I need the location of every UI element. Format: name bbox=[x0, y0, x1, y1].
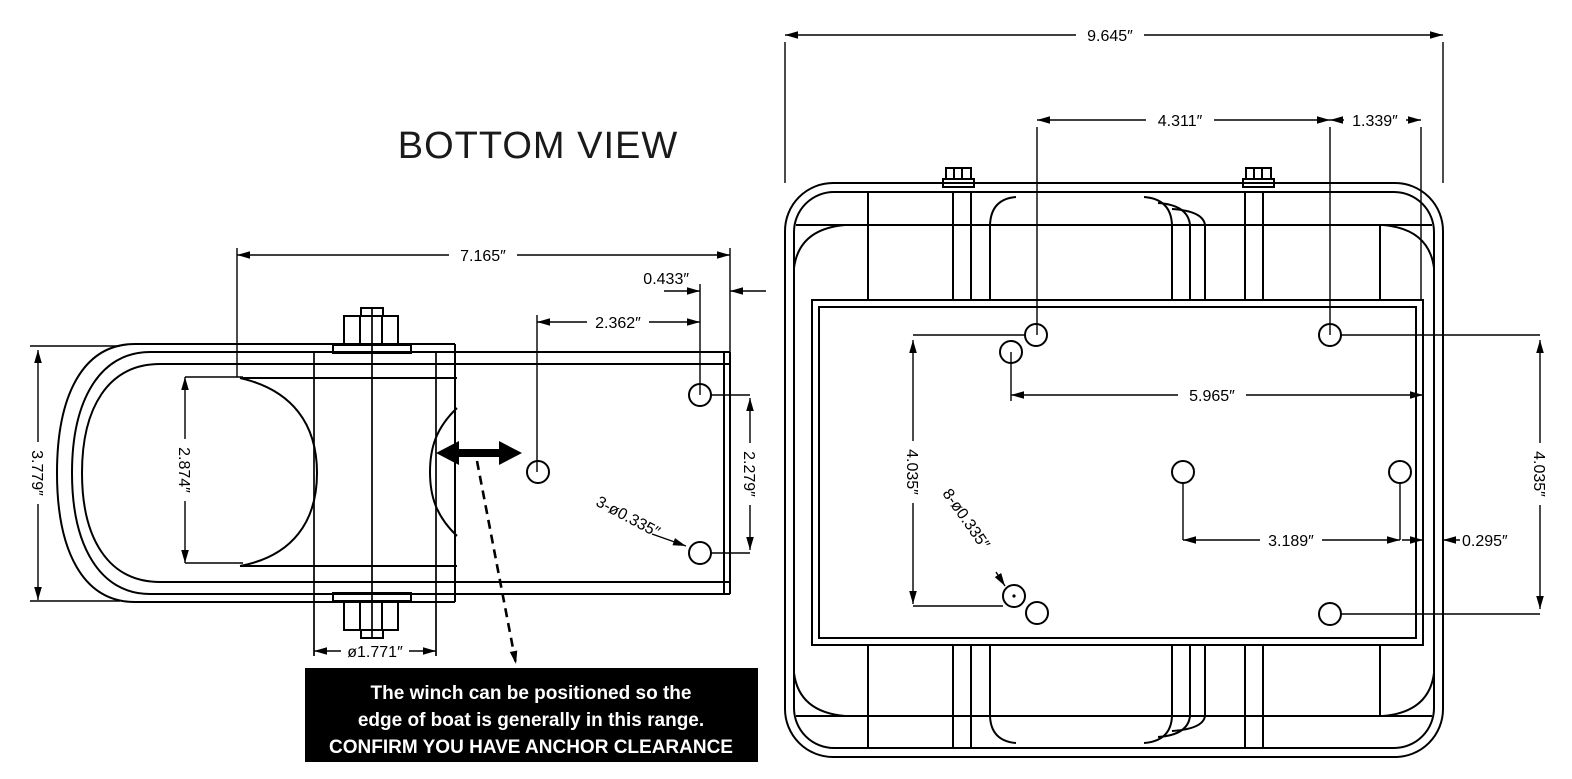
technical-drawing-sheet: BOTTOM VIEW bbox=[0, 0, 1572, 779]
top-struts bbox=[868, 193, 1380, 300]
dim-plate-width: 7.165″ bbox=[460, 248, 506, 265]
dim-hole-vertical-span: 2.279″ bbox=[740, 451, 757, 497]
note-leader-line bbox=[477, 461, 516, 664]
note-line-2: edge of boat is generally in this range. bbox=[358, 710, 704, 731]
left-view-structure bbox=[57, 308, 730, 656]
left-view-holes bbox=[527, 384, 711, 564]
double-headed-arrow bbox=[436, 441, 522, 465]
frame-bolt-right bbox=[1243, 168, 1274, 187]
callout-8-holes: 8-ø0.335″ bbox=[939, 486, 993, 553]
dim-hole-inset: 2.362″ bbox=[595, 315, 641, 332]
inner-arc bbox=[82, 364, 160, 582]
dim-edge-offset: 0.433″ bbox=[643, 271, 689, 288]
dim-overall-width: 9.645″ bbox=[1087, 28, 1133, 45]
drawing-canvas: BOTTOM VIEW bbox=[0, 0, 1572, 779]
dim-hole-span-bottom: 3.189″ bbox=[1268, 533, 1314, 550]
dim-hole-col-height-left: 4.035″ bbox=[903, 449, 920, 495]
right-view-holes bbox=[1000, 324, 1411, 625]
warning-note-box: The winch can be positioned so the edge … bbox=[305, 668, 758, 762]
middle-arc bbox=[72, 352, 150, 594]
dim-drum-diameter: ø1.771″ bbox=[347, 644, 403, 661]
note-line-1: The winch can be positioned so the bbox=[371, 683, 692, 704]
right-view-structure bbox=[785, 168, 1443, 757]
inner-frame bbox=[794, 192, 1434, 748]
dim-plate-edge-offset: 0.295″ bbox=[1462, 533, 1508, 550]
position-range-annotation bbox=[436, 441, 522, 664]
dim-hole-col-height-right: 4.035″ bbox=[1530, 451, 1547, 497]
dim-hole-span-top: 4.311″ bbox=[1158, 113, 1203, 130]
dim-overall-height: 3.779″ bbox=[28, 450, 45, 496]
dim-top-edge-offset: 1.339″ bbox=[1352, 113, 1398, 130]
frame-bolt-left bbox=[943, 168, 974, 187]
dim-hole-span-mid: 5.965″ bbox=[1189, 388, 1235, 405]
page-title: BOTTOM VIEW bbox=[398, 125, 679, 167]
outer-arc bbox=[57, 344, 135, 602]
left-view-dimensions: 7.165″ 0.433″ 2.362″ 3.779″ 2.874″ 2.279… bbox=[28, 246, 766, 661]
outer-frame bbox=[785, 183, 1443, 757]
drum-arc bbox=[240, 378, 317, 566]
note-line-3: CONFIRM YOU HAVE ANCHOR CLEARANCE bbox=[329, 737, 733, 758]
dim-drum-width: 2.874″ bbox=[175, 447, 192, 493]
bottom-struts bbox=[868, 645, 1380, 747]
roller-arc bbox=[430, 408, 457, 536]
